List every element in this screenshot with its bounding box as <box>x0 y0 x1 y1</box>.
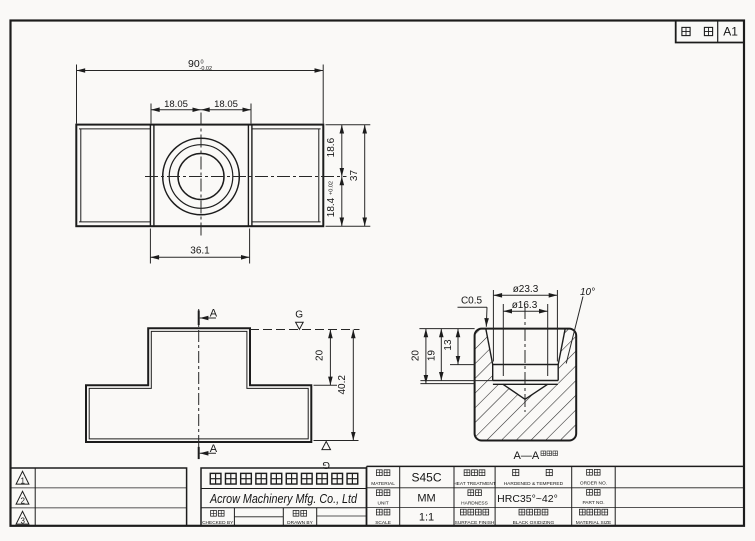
svg-text:S45C: S45C <box>411 471 441 485</box>
svg-text:18.05: 18.05 <box>164 99 188 110</box>
svg-text:19: 19 <box>426 350 437 362</box>
svg-text:90: 90 <box>188 58 200 70</box>
svg-text:BLACK OXIDIZING: BLACK OXIDIZING <box>513 520 555 526</box>
svg-text:C0.5: C0.5 <box>461 296 483 307</box>
svg-text:Acrow Machinery Mfg. Co., Ltd: Acrow Machinery Mfg. Co., Ltd <box>209 491 357 506</box>
svg-text:0: 0 <box>201 59 204 65</box>
svg-text:MATERIAL: MATERIAL <box>371 481 395 487</box>
svg-text:36.1: 36.1 <box>190 246 210 257</box>
svg-text:UNIT: UNIT <box>377 501 388 507</box>
svg-text:ø16.3: ø16.3 <box>512 300 538 311</box>
svg-text:10°: 10° <box>580 287 595 298</box>
svg-text:HARDNESS: HARDNESS <box>461 501 488 507</box>
svg-text:G: G <box>295 310 303 321</box>
svg-text:PART NO.: PART NO. <box>582 500 604 506</box>
svg-text:3: 3 <box>20 517 25 526</box>
svg-text:-0.02: -0.02 <box>200 66 213 72</box>
svg-text:20: 20 <box>315 349 326 361</box>
svg-text:18.05: 18.05 <box>214 99 238 110</box>
svg-text:SCALE: SCALE <box>375 520 391 526</box>
svg-text:CHECKED BY: CHECKED BY <box>202 520 234 526</box>
svg-text:DRAWN BY: DRAWN BY <box>287 520 313 526</box>
svg-text:HEAT TREATMENT: HEAT TREATMENT <box>453 481 496 487</box>
svg-text:A1: A1 <box>723 25 738 39</box>
svg-text:13: 13 <box>443 339 454 351</box>
svg-text:A: A <box>210 443 218 455</box>
svg-text:2: 2 <box>20 497 25 506</box>
svg-text:1:1: 1:1 <box>419 512 434 524</box>
svg-text:HRC35°~42°: HRC35°~42° <box>497 493 558 505</box>
svg-text:MM: MM <box>417 493 435 505</box>
svg-text:HARDENED & TEMPERED: HARDENED & TEMPERED <box>504 481 564 487</box>
svg-text:20: 20 <box>410 350 421 362</box>
svg-text:18.4: 18.4 <box>326 197 337 217</box>
svg-text:+0.02: +0.02 <box>329 181 335 195</box>
svg-text:40.2: 40.2 <box>337 375 348 395</box>
svg-text:SURFACE FINISH: SURFACE FINISH <box>455 520 495 526</box>
svg-text:ORDER NO.: ORDER NO. <box>580 481 607 487</box>
svg-text:18.6: 18.6 <box>326 137 337 157</box>
svg-text:A—A: A—A <box>514 450 540 462</box>
svg-text:1: 1 <box>20 477 25 486</box>
svg-text:MATERIAL SIZE: MATERIAL SIZE <box>576 520 611 526</box>
svg-text:37: 37 <box>349 170 360 182</box>
svg-text:A: A <box>210 307 218 319</box>
svg-text:ø23.3: ø23.3 <box>513 284 539 295</box>
